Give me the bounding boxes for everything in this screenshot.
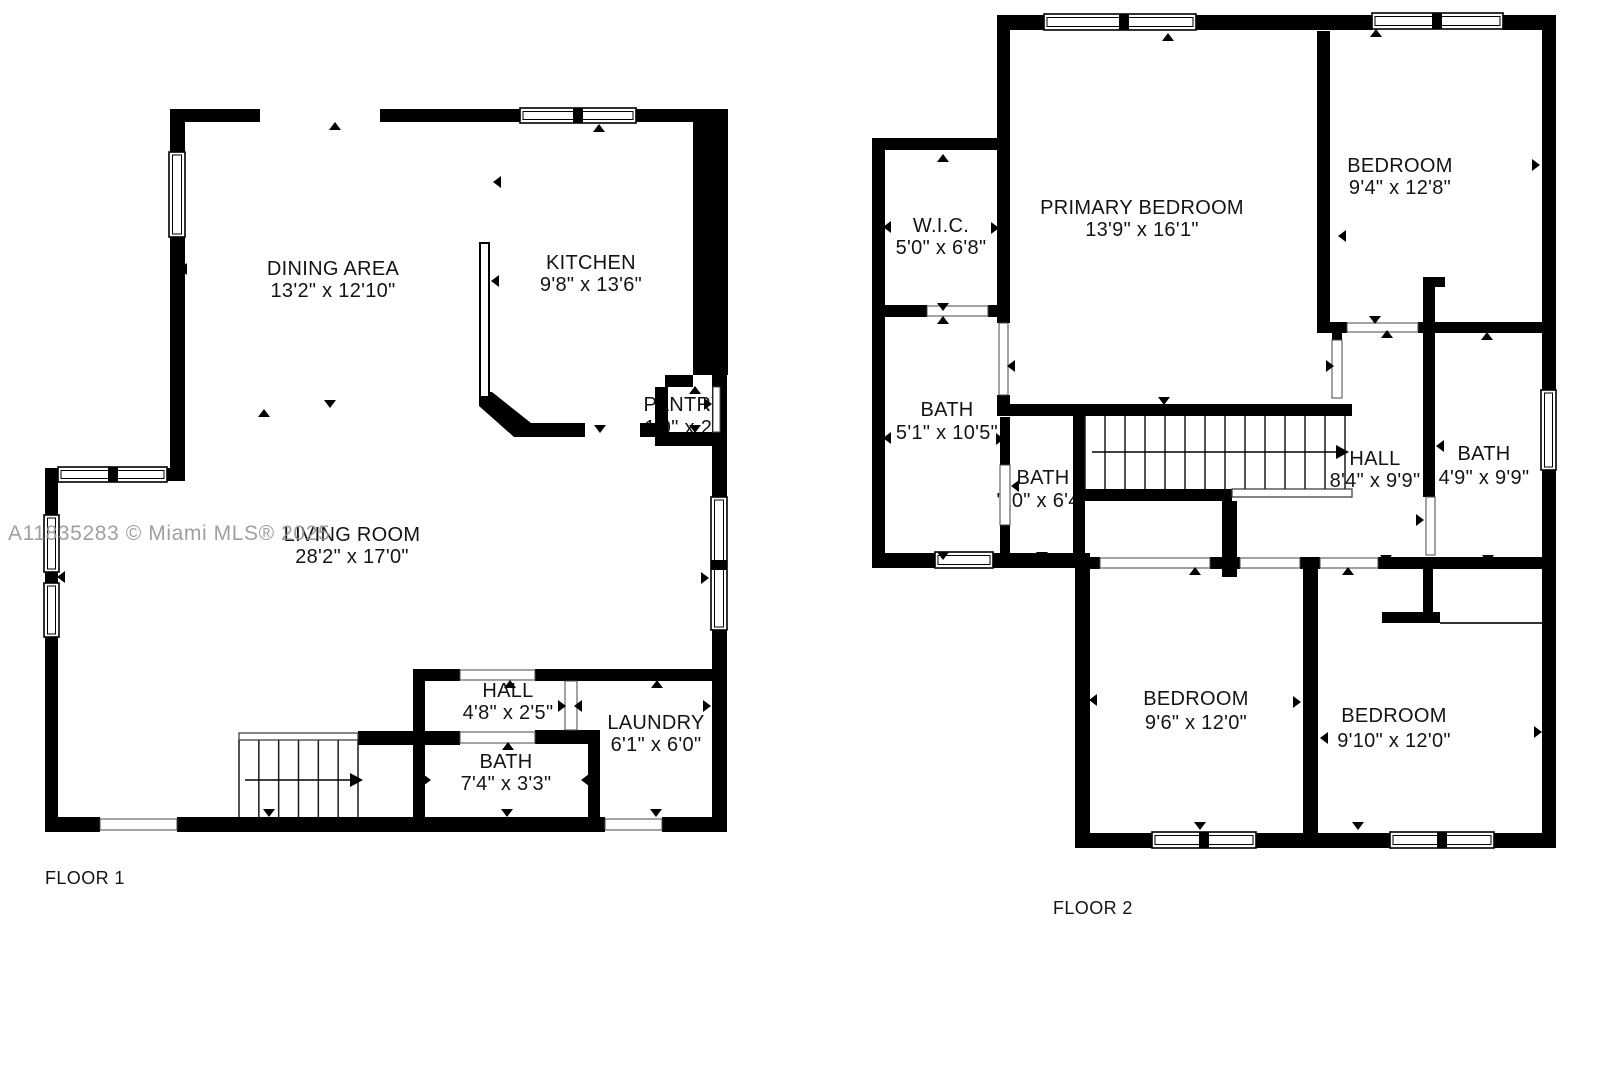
wall [177, 817, 605, 832]
wall [693, 109, 728, 375]
wall [1382, 612, 1440, 623]
room-label-dining-area: DINING AREA [267, 258, 400, 280]
room-label-laundry: LAUNDRY [607, 712, 704, 734]
floor1-label: FLOOR 1 [45, 868, 125, 888]
wall [535, 730, 600, 744]
floor-plan-image: DINING AREA 13'2" x 12'10" KITCHEN 9'8" … [0, 0, 1600, 1066]
room-label-primary-bedroom: PRIMARY BEDROOM [1040, 197, 1244, 219]
door-swing-marker [593, 124, 605, 132]
room-label-bath-f1: BATH [479, 751, 532, 773]
door-swing-marker [650, 809, 662, 817]
wall [45, 468, 58, 481]
wall [988, 305, 1008, 317]
wall [1494, 833, 1556, 848]
wall [640, 423, 668, 437]
door-swing-marker [1352, 822, 1364, 830]
door-swing-marker [501, 809, 513, 817]
room-label-bath-left: BATH [920, 399, 973, 421]
door-opening [100, 819, 177, 830]
wall [1000, 525, 1010, 557]
wall [997, 15, 1010, 323]
door-swing-marker [1416, 514, 1424, 526]
wall [636, 109, 700, 122]
door-opening [460, 670, 535, 680]
thin-partition-wall [480, 243, 489, 397]
room-dims-living-room: 28'2" x 17'0" [295, 546, 409, 568]
room-label-wic: W.I.C. [913, 215, 969, 237]
wall [712, 630, 727, 832]
room-dims-bath-left: 5'1" x 10'5" [896, 422, 998, 444]
wall [1423, 569, 1433, 612]
door-swing-marker [703, 700, 711, 712]
window [169, 152, 185, 237]
door-opening [1332, 340, 1342, 398]
door-swing-marker [689, 386, 701, 394]
door-swing-marker [701, 572, 709, 584]
wall [1317, 322, 1347, 333]
window [44, 583, 59, 637]
staircase [239, 740, 363, 817]
wall [167, 468, 185, 481]
room-dims-bedroom-top-right: 9'4" x 12'8" [1349, 177, 1451, 199]
wall [1317, 31, 1330, 322]
room-dims-wic: 5'0" x 6'8" [896, 237, 987, 259]
wall [358, 731, 460, 745]
wall [1002, 404, 1352, 416]
door-swing-marker [594, 425, 606, 433]
wall [170, 237, 185, 481]
floor2-label: FLOOR 2 [1053, 898, 1133, 918]
wall [665, 375, 693, 387]
wall [1332, 333, 1342, 340]
wall [1075, 833, 1152, 848]
stair-arrow-head [350, 773, 363, 787]
door-opening [1426, 497, 1435, 555]
wall [45, 637, 58, 832]
door-swing-marker [937, 316, 949, 324]
room-dims-bedroom-bottom-right: 9'10" x 12'0" [1337, 730, 1451, 752]
door-swing-marker [651, 680, 663, 688]
wall [1085, 489, 1232, 501]
door-swing-marker [258, 409, 270, 417]
door-swing-marker [263, 809, 275, 817]
room-label-bedroom-bottom-right: BEDROOM [1341, 705, 1446, 727]
room-dims-bath-right: 4'9" x 9'9" [1439, 467, 1530, 489]
room-dims-laundry: 6'1" x 6'0" [611, 734, 702, 756]
door-opening [927, 306, 988, 316]
wall [413, 669, 460, 681]
door-swing-marker [491, 275, 499, 287]
room-dims-dining-area: 13'2" x 12'10" [270, 280, 395, 302]
wall [380, 109, 520, 122]
wall [1418, 322, 1542, 333]
door-opening [713, 387, 720, 432]
door-swing-marker [937, 154, 949, 162]
door-opening [1240, 558, 1300, 568]
room-label-hall-f2: HALL [1349, 448, 1400, 470]
door-swing-marker [1158, 397, 1170, 405]
wall [45, 572, 58, 583]
door-opening [999, 323, 1008, 395]
window [1541, 390, 1556, 470]
stair-landing-edge [1232, 489, 1352, 497]
door-swing-marker [329, 122, 341, 130]
room-label-bath-right: BATH [1457, 443, 1510, 465]
room-dims-kitchen: 9'8" x 13'6" [540, 274, 642, 296]
door-swing-marker [1481, 332, 1493, 340]
stair-arrow-head [1336, 445, 1349, 459]
room-label-bedroom-bottom-left: BEDROOM [1143, 688, 1248, 710]
room-label-kitchen: KITCHEN [546, 252, 636, 274]
door-swing-marker [1436, 440, 1444, 452]
wall [1303, 560, 1318, 833]
wall [1210, 557, 1240, 569]
door-swing-marker [1194, 822, 1206, 830]
door-swing-marker [1293, 696, 1301, 708]
room-dims-bath-f1: 7'4" x 3'3" [461, 773, 552, 795]
wall [883, 305, 927, 317]
door-opening [605, 819, 662, 830]
door-swing-marker [423, 774, 431, 786]
door-swing-marker [1089, 694, 1097, 706]
door-swing-marker [324, 400, 336, 408]
room-label-bath-small: BATH [1016, 467, 1069, 489]
staircase [1085, 416, 1349, 489]
door-opening [1320, 558, 1378, 568]
floor1-room-labels: DINING AREA 13'2" x 12'10" KITCHEN 9'8" … [267, 252, 725, 795]
wall-diagonal [479, 392, 531, 437]
wall [1423, 277, 1445, 287]
door-swing-marker [1162, 33, 1174, 41]
door-swing-marker [1320, 732, 1328, 744]
wall [1000, 417, 1010, 465]
room-label-bedroom-top-right: BEDROOM [1347, 155, 1452, 177]
wall [872, 138, 885, 568]
room-dims-primary-bedroom: 13'9" x 16'1" [1085, 219, 1199, 241]
wall [45, 481, 58, 515]
wall [1378, 557, 1542, 569]
door-opening [1347, 323, 1418, 332]
wall [1542, 15, 1556, 390]
wall [170, 109, 185, 152]
wall [1075, 557, 1090, 848]
wall [1196, 15, 1372, 30]
watermark-text: A11835283 © Miami MLS® 2025 [8, 522, 330, 545]
stair-landing-edge [239, 733, 358, 740]
wall [45, 817, 100, 832]
door-swing-marker [493, 176, 501, 188]
wall [588, 744, 600, 817]
wall [535, 669, 712, 681]
door-swing-marker [1532, 159, 1540, 171]
wall [1542, 470, 1556, 848]
wall [872, 138, 1008, 150]
door-swing-marker [1338, 230, 1346, 242]
door-swing-marker [1534, 726, 1542, 738]
door-swing-marker [1370, 29, 1382, 37]
door-opening [1000, 465, 1010, 525]
wall [1423, 287, 1435, 322]
door-opening [460, 732, 535, 743]
door-opening [1100, 558, 1210, 568]
wall [1256, 833, 1390, 848]
wall [662, 817, 727, 832]
wall [872, 553, 935, 568]
door-swing-marker [581, 774, 589, 786]
wall [1423, 333, 1435, 497]
room-dims-hall-f1: 4'8" x 2'5" [463, 702, 554, 724]
room-dims-bedroom-bottom-left: 9'6" x 12'0" [1145, 712, 1247, 734]
